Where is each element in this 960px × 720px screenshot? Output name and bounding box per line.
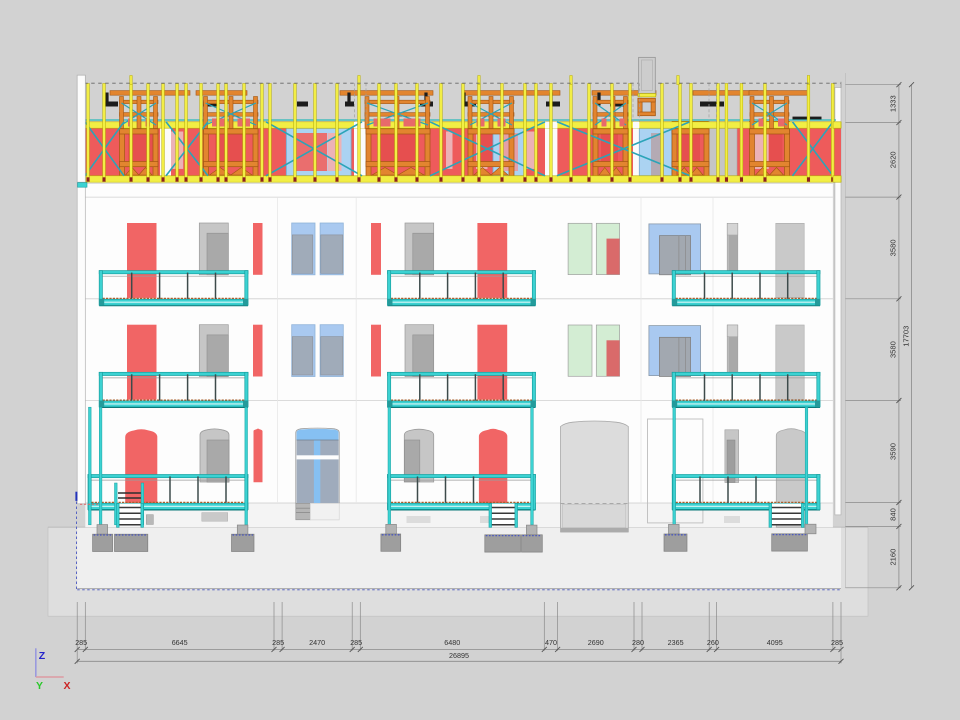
svg-text:280: 280 (632, 638, 644, 647)
svg-text:2690: 2690 (588, 638, 604, 647)
svg-text:X: X (63, 680, 70, 692)
svg-text:4095: 4095 (767, 638, 783, 647)
svg-text:2365: 2365 (668, 638, 684, 647)
svg-text:3580: 3580 (889, 239, 898, 256)
svg-text:2160: 2160 (889, 549, 898, 566)
svg-text:Z: Z (39, 650, 46, 662)
svg-text:6480: 6480 (444, 638, 460, 647)
svg-text:26895: 26895 (449, 651, 469, 660)
svg-text:2620: 2620 (889, 151, 898, 168)
svg-text:840: 840 (889, 508, 898, 521)
svg-text:3580: 3580 (889, 341, 898, 358)
svg-text:470: 470 (545, 638, 557, 647)
svg-text:1333: 1333 (889, 95, 898, 112)
svg-text:17703: 17703 (901, 326, 910, 347)
svg-text:6645: 6645 (172, 638, 188, 647)
svg-text:285: 285 (831, 638, 843, 647)
svg-text:285: 285 (272, 638, 284, 647)
svg-text:2470: 2470 (309, 638, 325, 647)
svg-text:285: 285 (350, 638, 362, 647)
svg-text:Y: Y (36, 680, 43, 692)
svg-text:285: 285 (75, 638, 87, 647)
svg-text:260: 260 (707, 638, 719, 647)
svg-text:3590: 3590 (889, 443, 898, 460)
